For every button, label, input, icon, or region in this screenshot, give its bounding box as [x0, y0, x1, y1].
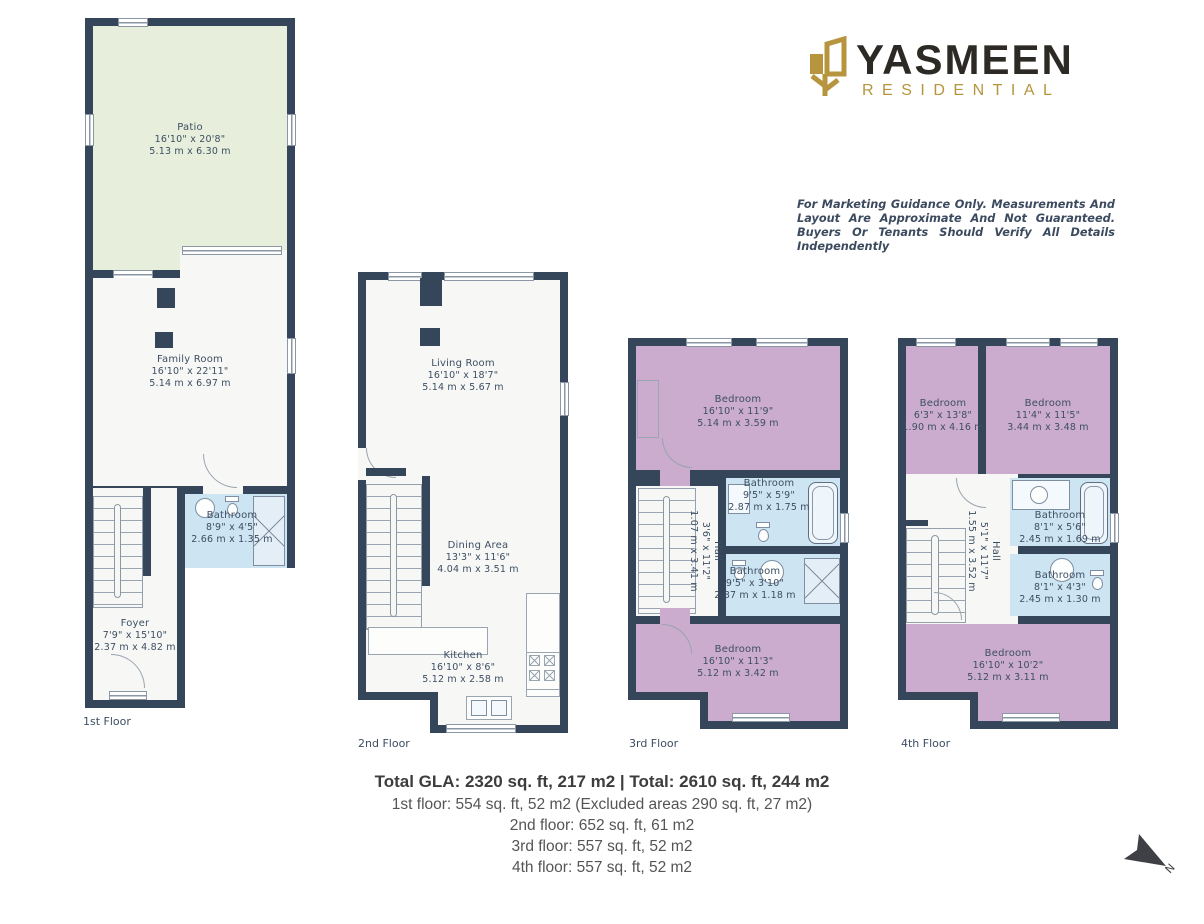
room-label-kitchen: Kitchen 16'10" x 8'6" 5.12 m x 2.58 m	[366, 650, 560, 686]
room-dim-metric: 2.66 m x 1.35 m	[177, 534, 287, 546]
room-name: Bedroom	[636, 394, 840, 406]
room-label-bathroom-mid: Bathroom 8'1" x 4'3" 2.45 m x 1.30 m	[1010, 570, 1110, 606]
kitchen-sink	[491, 700, 507, 716]
window	[118, 18, 148, 27]
room-dim-metric: 4.04 m x 3.51 m	[398, 564, 558, 576]
floor-label-4th: 4th Floor	[901, 737, 950, 750]
room-dim-imperial: 16'10" x 10'2"	[906, 660, 1110, 672]
building-logo-icon	[802, 36, 856, 102]
brand-tagline: RESIDENTIAL	[862, 82, 1060, 100]
room-label-bedroom-top: Bedroom 16'10" x 11'9" 5.14 m x 3.59 m	[636, 394, 840, 430]
floor-area-line-4: 4th floor: 557 sq. ft, 52 m2	[0, 857, 1204, 878]
room-dim-imperial: 3'6" x 11'2"	[699, 496, 711, 606]
room-dim-metric: 5.12 m x 2.58 m	[366, 674, 560, 686]
room-label-family-room: Family Room 16'10" x 22'11" 5.14 m x 6.9…	[93, 354, 287, 390]
room-name: Kitchen	[366, 650, 560, 662]
brand-logo: YASMEEN RESIDENTIAL	[800, 34, 1110, 104]
brand-name: YASMEEN	[856, 36, 1074, 84]
room-dim-imperial: 16'10" x 20'8"	[93, 134, 287, 146]
window	[388, 272, 422, 281]
window	[916, 338, 956, 347]
floor-label-3rd: 3rd Floor	[629, 737, 678, 750]
floorplan-4th-floor: Bathroom 8'1" x 5'6" 2.45 m x 1.69 m Bat…	[898, 338, 1128, 748]
room-label-foyer: Foyer 7'9" x 15'10" 2.37 m x 4.82 m	[85, 618, 185, 654]
window	[287, 338, 296, 374]
room-label-bedroom-right: Bedroom 11'4" x 11'5" 3.44 m x 3.48 m	[986, 398, 1110, 434]
door-gap	[660, 470, 690, 486]
room-dim-metric: 5.12 m x 3.11 m	[906, 672, 1110, 684]
room-dim-imperial: 16'10" x 8'6"	[366, 662, 560, 674]
window	[1110, 513, 1119, 543]
room-dim-imperial: 6'3" x 13'8"	[888, 410, 998, 422]
room-label-bedroom-bottom: Bedroom 16'10" x 11'3" 5.12 m x 3.42 m	[636, 644, 840, 680]
window	[1060, 338, 1098, 347]
room-dim-metric: 3.44 m x 3.48 m	[986, 422, 1110, 434]
room-dim-imperial: 8'1" x 5'6"	[1010, 522, 1110, 534]
room-dim-imperial: 13'3" x 11'6"	[398, 552, 558, 564]
room-dim-metric: 2.87 m x 1.75 m	[724, 502, 814, 514]
room-dim-imperial: 16'10" x 11'9"	[636, 406, 840, 418]
room-label-bathroom-top: Bathroom 8'1" x 5'6" 2.45 m x 1.69 m	[1010, 510, 1110, 546]
room-dim-imperial: 7'9" x 15'10"	[85, 630, 185, 642]
room-name: Family Room	[93, 354, 287, 366]
door-gap	[358, 448, 366, 480]
room-dim-imperial: 11'4" x 11'5"	[986, 410, 1110, 422]
floor-label-2nd: 2nd Floor	[358, 737, 410, 750]
room-name: Hall	[711, 496, 723, 606]
stairs	[93, 496, 143, 608]
room-name: Bathroom	[1010, 570, 1110, 582]
bathroom-sink	[1030, 486, 1048, 504]
room-dim-metric: 1.90 m x 4.16 m	[888, 422, 998, 434]
room-name: Bedroom	[906, 648, 1110, 660]
window	[560, 382, 569, 416]
room-name: Bedroom	[636, 644, 840, 656]
disclaimer-text: For Marketing Guidance Only. Measurement…	[797, 198, 1115, 254]
room-label-hall: Hall 5'1" x 11'7" 1.55 m x 3.52 m	[965, 496, 1001, 606]
room-floor-closet	[906, 474, 930, 520]
window	[446, 724, 516, 733]
window	[732, 713, 790, 722]
room-name: Foyer	[85, 618, 185, 630]
room-name: Bedroom	[986, 398, 1110, 410]
window	[444, 272, 534, 281]
chimney-block	[420, 278, 442, 306]
room-label-bedroom-left: Bedroom 6'3" x 13'8" 1.90 m x 4.16 m	[888, 398, 998, 434]
floor-area-line-1: 1st floor: 554 sq. ft, 52 m2 (Excluded a…	[0, 794, 1204, 815]
room-dim-metric: 2.37 m x 4.82 m	[85, 642, 185, 654]
room-dim-imperial: 8'9" x 4'5"	[177, 522, 287, 534]
window	[686, 338, 732, 347]
room-dim-imperial: 5'1" x 11'7"	[977, 496, 989, 606]
room-name: Bathroom	[724, 478, 814, 490]
chimney-block	[420, 328, 440, 346]
room-dim-metric: 1.07 m x 3.41 m	[687, 496, 699, 606]
room-label-bedroom-bottom: Bedroom 16'10" x 10'2" 5.12 m x 3.11 m	[906, 648, 1110, 684]
floor-area-line-3: 3rd floor: 557 sq. ft, 52 m2	[0, 836, 1204, 857]
wall	[366, 468, 406, 476]
floor-label-1st: 1st Floor	[83, 715, 131, 728]
room-dim-metric: 5.14 m x 3.59 m	[636, 418, 840, 430]
room-name: Bathroom	[177, 510, 287, 522]
window	[109, 691, 147, 700]
area-summary: Total GLA: 2320 sq. ft, 217 m2 | Total: …	[0, 770, 1204, 878]
floorplan-1st-floor: Bathroom 8'9" x 4'5" 2.66 m x 1.35 m Pat…	[85, 18, 315, 733]
floorplan-2nd-floor: Living Room 16'10" x 18'7" 5.14 m x 5.67…	[358, 272, 588, 752]
room-name: Patio	[93, 122, 287, 134]
north-label: N	[1163, 861, 1178, 876]
room-dim-metric: 5.12 m x 3.42 m	[636, 668, 840, 680]
room-name: Bedroom	[888, 398, 998, 410]
north-indicator: N	[1118, 826, 1190, 892]
room-dim-imperial: 8'1" x 4'3"	[1010, 582, 1110, 594]
window	[1006, 338, 1050, 347]
window	[287, 114, 296, 146]
toilet	[756, 522, 770, 542]
floorplan-3rd-floor: Bathroom 9'5" x 5'9" 2.87 m x 1.75 m Bat…	[628, 338, 858, 748]
room-dim-imperial: 16'10" x 22'11"	[93, 366, 287, 378]
chimney-block	[155, 332, 173, 348]
room-label-patio: Patio 16'10" x 20'8" 5.13 m x 6.30 m	[93, 122, 287, 158]
room-name: Hall	[989, 496, 1001, 606]
window	[182, 246, 282, 255]
room-label-living-room: Living Room 16'10" x 18'7" 5.14 m x 5.67…	[366, 358, 560, 394]
room-dim-metric: 2.45 m x 1.69 m	[1010, 534, 1110, 546]
room-dim-metric: 5.14 m x 5.67 m	[366, 382, 560, 394]
room-dim-metric: 5.13 m x 6.30 m	[93, 146, 287, 158]
total-gla-line: Total GLA: 2320 sq. ft, 217 m2 | Total: …	[0, 770, 1204, 794]
room-name: Living Room	[366, 358, 560, 370]
window	[756, 338, 808, 347]
chimney-block	[157, 288, 175, 308]
room-dim-metric: 1.55 m x 3.52 m	[965, 496, 977, 606]
north-arrow-icon: N	[1118, 826, 1190, 892]
room-label-bathroom-top: Bathroom 9'5" x 5'9" 2.87 m x 1.75 m	[724, 478, 814, 514]
door-gap	[660, 608, 690, 624]
room-label-hall: Hall 3'6" x 11'2" 1.07 m x 3.41 m	[687, 496, 723, 606]
window	[840, 513, 849, 543]
kitchen-sink	[471, 700, 487, 716]
room-dim-imperial: 16'10" x 11'3"	[636, 656, 840, 668]
window	[1002, 713, 1060, 722]
wall	[143, 488, 151, 576]
room-label-bathroom: Bathroom 8'9" x 4'5" 2.66 m x 1.35 m	[177, 510, 287, 546]
room-label-dining-area: Dining Area 13'3" x 11'6" 4.04 m x 3.51 …	[398, 540, 558, 576]
room-dim-metric: 2.45 m x 1.30 m	[1010, 594, 1110, 606]
room-dim-imperial: 9'5" x 5'9"	[724, 490, 814, 502]
floorplan-page: YASMEEN RESIDENTIAL For Marketing Guidan…	[0, 0, 1204, 924]
room-name: Dining Area	[398, 540, 558, 552]
floor-area-line-2: 2nd floor: 652 sq. ft, 61 m2	[0, 815, 1204, 836]
room-dim-metric: 5.14 m x 6.97 m	[93, 378, 287, 390]
door-gap	[203, 486, 243, 494]
room-name: Bathroom	[1010, 510, 1110, 522]
room-dim-imperial: 16'10" x 18'7"	[366, 370, 560, 382]
